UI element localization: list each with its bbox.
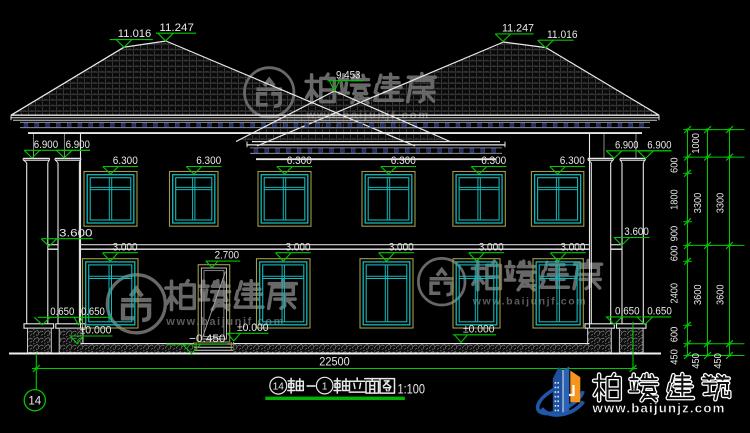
svg-text:450: 450 [713,353,724,369]
svg-text:±0.000: ±0.000 [463,323,495,335]
svg-text:11.247: 11.247 [159,22,194,34]
svg-text:6.300: 6.300 [287,155,312,167]
svg-text:6.300: 6.300 [196,155,221,167]
svg-text:600: 600 [670,245,681,261]
svg-text:0.650: 0.650 [81,306,105,318]
svg-text:−0.450: −0.450 [189,333,226,345]
svg-text:3.000: 3.000 [286,241,311,253]
svg-text:6.300: 6.300 [560,155,585,167]
svg-text:6.900: 6.900 [66,139,90,151]
svg-text:3.000: 3.000 [560,241,585,253]
svg-text:6.900: 6.900 [615,139,639,151]
svg-text:11.016: 11.016 [118,28,152,40]
svg-text:9.453: 9.453 [336,69,361,81]
svg-text:6.300: 6.300 [391,155,416,167]
svg-text:3.000: 3.000 [389,241,414,253]
svg-text:2400: 2400 [670,283,681,304]
svg-text:6.900: 6.900 [647,139,671,151]
svg-text:3.600: 3.600 [624,226,649,238]
svg-text:3.000: 3.000 [479,241,504,253]
svg-text:600: 600 [670,326,681,342]
svg-text:900: 900 [670,225,681,241]
svg-text:1800: 1800 [670,189,681,210]
svg-text:14: 14 [273,381,285,392]
svg-text:600: 600 [670,157,681,173]
svg-text:±0.000: ±0.000 [80,325,112,337]
svg-text:±0.000: ±0.000 [237,322,269,334]
svg-text:11.016: 11.016 [547,29,578,41]
svg-text:2.700: 2.700 [215,250,240,262]
svg-text:1: 1 [322,381,328,392]
svg-text:1:100: 1:100 [398,381,426,396]
svg-text:3.600: 3.600 [59,227,93,239]
svg-text:1000: 1000 [691,133,702,154]
svg-text:6.300: 6.300 [113,155,138,167]
svg-text:6.900: 6.900 [34,139,58,151]
svg-text:450: 450 [670,349,681,365]
svg-text:22500: 22500 [319,356,350,369]
svg-text:6.300: 6.300 [481,155,506,167]
svg-text:3600: 3600 [715,284,726,305]
svg-text:14: 14 [28,395,41,407]
svg-text:www.baijunjf.com: www.baijunjf.com [472,296,587,308]
svg-text:0.650: 0.650 [50,306,74,318]
svg-text:3300: 3300 [715,192,726,213]
svg-text:3300: 3300 [693,192,704,213]
svg-text:3600: 3600 [693,284,704,305]
svg-text:www.baijunjz.com: www.baijunjz.com [592,401,726,416]
svg-text:0.650: 0.650 [615,306,640,318]
svg-text:3.000: 3.000 [113,241,138,253]
svg-text:450: 450 [691,353,702,369]
svg-text:0.650: 0.650 [647,306,672,318]
svg-text:11.247: 11.247 [502,23,534,35]
